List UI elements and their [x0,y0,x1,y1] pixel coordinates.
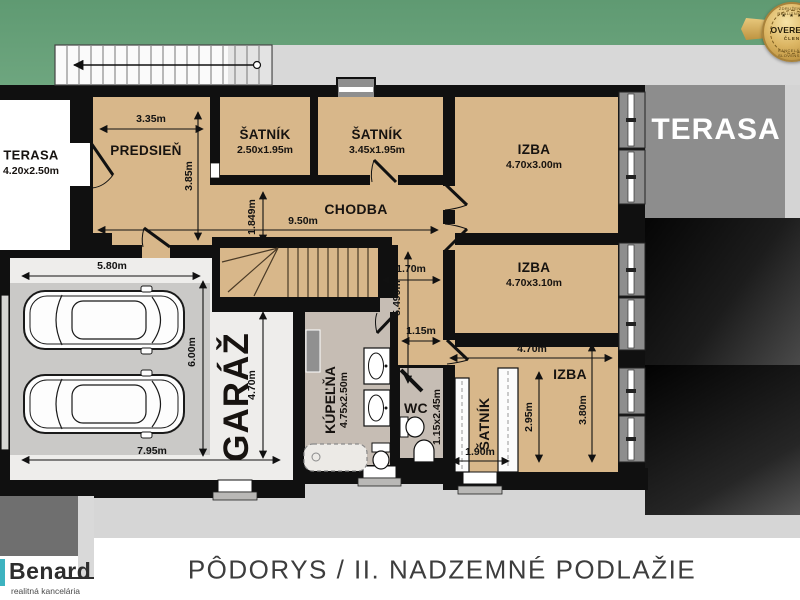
room-label-kupelna: KÚPEĽŇA 4.75x2.50m [322,366,350,434]
brand-rule [66,577,94,579]
dim-chodba-width: 1.849m [246,199,258,235]
room-label-chodba: CHODBA [324,201,387,217]
dim-izba-c-width: 4.70m [517,343,547,355]
room-label-izba-c: IZBA [553,366,587,382]
dim-predsien-height: 3.85m [183,161,195,191]
badge-stars: ★ ★ ★ [764,13,800,19]
room-label-izba-b: IZBA [518,260,551,276]
room-dims-satnik-b: 3.45x1.95m [349,144,405,156]
room-label-satnik-c: ŠATNÍK [476,398,492,451]
room-label-satnik-b: ŠATNÍK [351,127,402,143]
dim-corridor-narrow: 1.15m [406,325,436,337]
floorplan-page: TERASA 4.20x2.50m PREDSIEŇ ŠATNÍK 2.50x1… [0,0,800,600]
dim-chodba-length: 9.50m [288,215,318,227]
room-label-izba-a: IZBA [518,142,551,158]
brand-tagline: realitná kancelária [11,586,80,596]
car-icon [24,286,184,354]
dim-garage-inner-height: 4.70m [246,370,258,400]
dim-izba-c-inner-height: 2.95m [523,402,535,432]
dim-corridor-width: 1.70m [396,263,426,275]
page-title: PÔDORYS / II. NADZEMNÉ PODLAŽIE [188,555,696,586]
dim-predsien-width: 3.35m [136,113,166,125]
room-dims-izba-a: 4.70x3.00m [506,159,562,171]
dim-corridor-length: 5.499m [391,280,403,316]
kupelna-dims: 4.75x2.50m [338,366,350,434]
badge-label: OVERENÝ [764,25,800,35]
interior-staircase [220,248,378,297]
room-dims-wc: 1.15x2.45m [431,389,443,445]
window-units [619,92,645,462]
room-label-satnik-a: ŠATNÍK [239,127,290,143]
dim-izba-c-height: 3.80m [577,395,589,425]
room-dims-terasa-left: 4.20x2.50m [3,165,59,177]
driveway [0,496,78,558]
dim-garage-width-top: 5.80m [97,260,127,272]
room-dims-satnik-a: 2.50x1.95m [237,144,293,156]
room-label-terasa-right: TERASA [651,113,780,148]
garage-door [1,295,9,450]
dim-garage-width-bottom: 7.95m [137,445,167,457]
room-dims-izba-b: 4.70x3.10m [506,277,562,289]
room-label-wc: WC [404,400,428,416]
verified-badge-icon: ZDRUŽENIE REALITNÝCH ★ ★ ★ OVERENÝ ČLEN … [762,2,800,62]
dim-satnik-c-width: 1.90m [465,446,495,458]
brand-name: Benard [9,558,91,585]
room-label-predsien: PREDSIEŇ [110,143,181,159]
kupelna-name: KÚPEĽŇA [322,366,338,434]
brand-accent-bar [0,559,5,586]
car-icon [24,370,184,438]
dim-garage-height: 6.00m [186,337,198,367]
exterior-staircase [55,45,272,85]
room-label-terasa-left: TERASA [3,149,58,164]
badge-ring-text-bottom: KANCELÁRIÍ SLOVENSKA [764,48,800,58]
badge-member-label: ČLEN [764,36,800,41]
